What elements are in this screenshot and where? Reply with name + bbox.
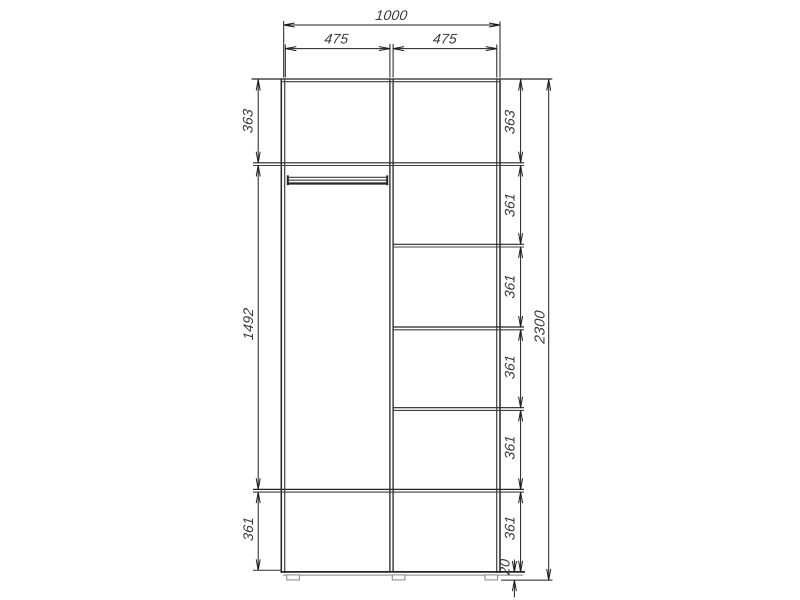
svg-text:20: 20	[497, 558, 513, 577]
svg-text:363: 363	[240, 108, 256, 134]
svg-text:475: 475	[324, 31, 350, 47]
svg-text:361: 361	[502, 435, 518, 461]
svg-text:361: 361	[502, 515, 518, 541]
svg-text:475: 475	[432, 31, 458, 47]
svg-text:361: 361	[502, 354, 518, 380]
svg-text:361: 361	[240, 516, 256, 542]
svg-text:1492: 1492	[240, 307, 256, 341]
svg-text:361: 361	[502, 192, 518, 218]
svg-text:1000: 1000	[375, 7, 409, 23]
svg-text:361: 361	[502, 274, 518, 300]
svg-text:363: 363	[502, 109, 518, 135]
svg-text:2300: 2300	[532, 310, 548, 346]
